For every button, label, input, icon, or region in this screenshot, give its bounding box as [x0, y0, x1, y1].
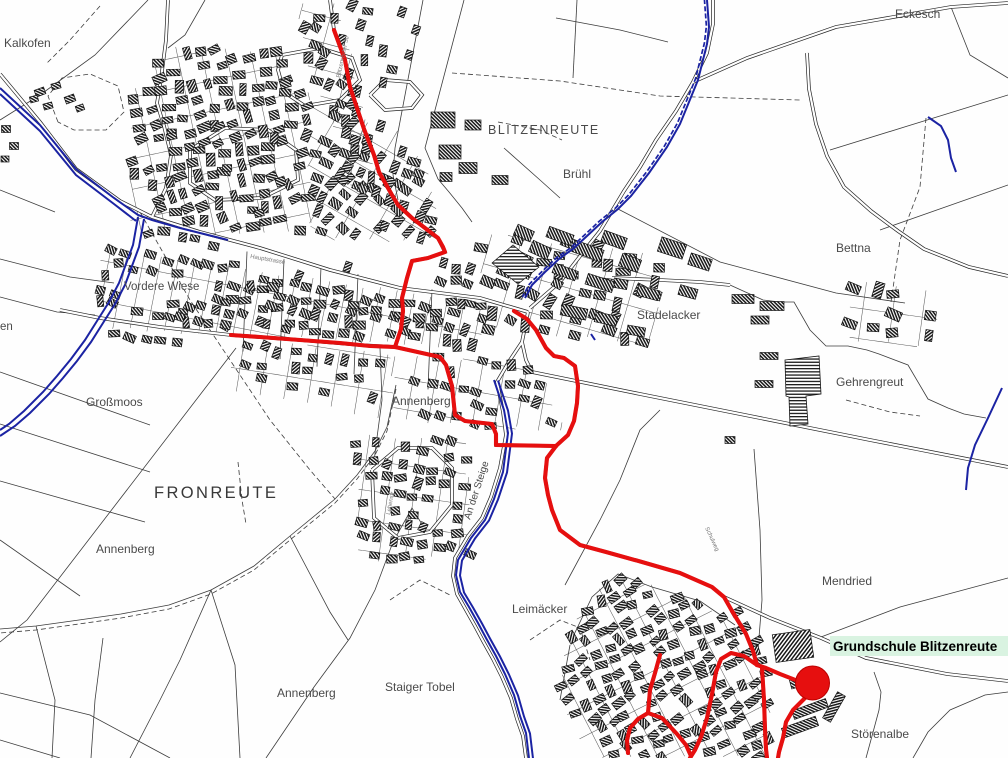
svg-text:Annenberg: Annenberg — [277, 686, 336, 700]
svg-text:Bettna: Bettna — [836, 241, 871, 255]
svg-text:Großmoos: Großmoos — [86, 395, 143, 409]
svg-text:BLITZENREUTE: BLITZENREUTE — [488, 123, 600, 137]
svg-text:Störenalbe: Störenalbe — [851, 727, 909, 741]
svg-text:Annenberg: Annenberg — [392, 394, 451, 408]
svg-text:FRONREUTE: FRONREUTE — [154, 484, 278, 502]
svg-text:Gehrengreut: Gehrengreut — [836, 375, 904, 389]
svg-text:Grundschule Blitzenreute: Grundschule Blitzenreute — [833, 639, 998, 654]
svg-text:Vordere Wiese: Vordere Wiese — [124, 281, 199, 293]
svg-text:Kalkofen: Kalkofen — [4, 36, 51, 50]
svg-text:Leimäcker: Leimäcker — [512, 602, 567, 616]
svg-text:Stadelacker: Stadelacker — [637, 308, 700, 322]
svg-text:Annenberg: Annenberg — [96, 542, 155, 556]
svg-text:en: en — [0, 321, 13, 333]
svg-text:Staiger Tobel: Staiger Tobel — [385, 680, 455, 694]
svg-text:Eckesch: Eckesch — [895, 7, 940, 21]
svg-text:Mendried: Mendried — [822, 574, 872, 588]
svg-text:Brühl: Brühl — [563, 167, 591, 181]
